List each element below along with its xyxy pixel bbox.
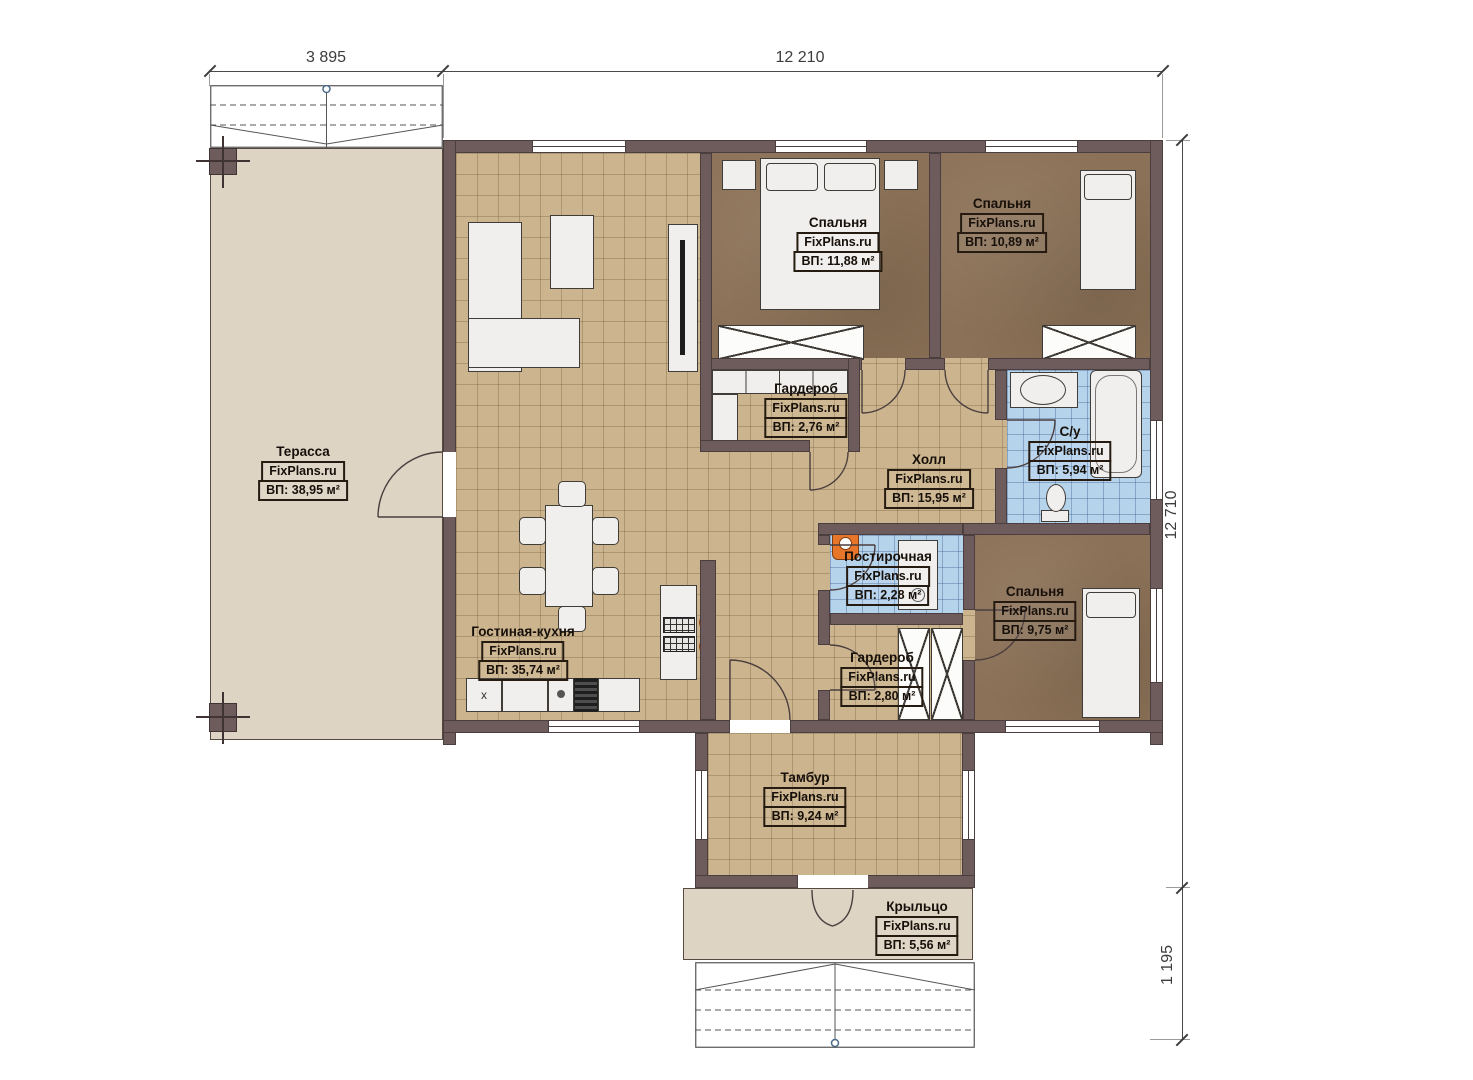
- extension-line: [443, 74, 444, 138]
- room-name: Гардероб: [774, 381, 838, 396]
- room-name: Холл: [912, 452, 946, 467]
- watermark: FixPlans.ru: [887, 469, 970, 490]
- room-area: ВП: 2,76 м²: [765, 417, 848, 438]
- room-area: ВП: 9,24 м²: [764, 806, 847, 827]
- room-name: Постирочная: [844, 549, 932, 564]
- dimension-right: 12 710: [1163, 475, 1181, 555]
- door-arc-vestibule: [730, 660, 790, 720]
- watermark: FixPlans.ru: [846, 566, 929, 587]
- room-name: Гардероб: [850, 650, 914, 665]
- room-label-vestibule: Тамбур FixPlans.ru ВП: 9,24 м²: [763, 770, 846, 827]
- room-area: ВП: 2,28 м²: [847, 585, 930, 606]
- dimension-top-left: 3 895: [286, 49, 366, 67]
- room-label-terrace: Терасса FixPlans.ru ВП: 38,95 м²: [258, 444, 348, 501]
- watermark: FixPlans.ru: [875, 916, 958, 937]
- room-area: ВП: 2,80 м²: [841, 686, 924, 707]
- dimension-line-top: [210, 71, 1163, 72]
- watermark: FixPlans.ru: [1028, 441, 1111, 462]
- door-arc-terrace: [378, 452, 443, 517]
- watermark: FixPlans.ru: [481, 641, 564, 662]
- room-label-living-kitchen: Гостиная-кухня FixPlans.ru ВП: 35,74 м²: [471, 624, 574, 681]
- room-area: ВП: 5,56 м²: [876, 935, 959, 956]
- room-area: ВП: 11,88 м²: [793, 251, 882, 272]
- room-area: ВП: 10,89 м²: [957, 232, 1047, 253]
- room-area: ВП: 15,95 м²: [884, 488, 974, 509]
- watermark: FixPlans.ru: [840, 667, 923, 688]
- room-label-bedroom-2: Спальня FixPlans.ru ВП: 10,89 м²: [957, 196, 1047, 253]
- room-label-bedroom-1: Спальня FixPlans.ru ВП: 11,88 м²: [793, 215, 882, 272]
- room-name: Тамбур: [781, 770, 830, 785]
- doors-layer: [0, 0, 1473, 1080]
- door-arc-bedroom-1: [862, 370, 905, 413]
- extension-line: [1166, 887, 1190, 888]
- room-name: Крыльцо: [886, 899, 947, 914]
- dimension-line-right: [1182, 140, 1183, 1040]
- room-label-porch: Крыльцо FixPlans.ru ВП: 5,56 м²: [875, 899, 958, 956]
- watermark: FixPlans.ru: [764, 398, 847, 419]
- watermark: FixPlans.ru: [763, 787, 846, 808]
- room-area: ВП: 38,95 м²: [258, 480, 348, 501]
- room-label-hall: Холл FixPlans.ru ВП: 15,95 м²: [884, 452, 974, 509]
- watermark: FixPlans.ru: [261, 461, 344, 482]
- watermark: FixPlans.ru: [796, 232, 879, 253]
- watermark: FixPlans.ru: [960, 213, 1043, 234]
- room-name: Спальня: [973, 196, 1031, 211]
- room-name: Спальня: [809, 215, 867, 230]
- room-label-laundry: Постирочная FixPlans.ru ВП: 2,28 м²: [844, 549, 932, 606]
- room-area: ВП: 5,94 м²: [1029, 460, 1112, 481]
- extension-line: [209, 74, 210, 86]
- watermark: FixPlans.ru: [993, 601, 1076, 622]
- room-name: С/у: [1059, 424, 1080, 439]
- room-label-bathroom: С/у FixPlans.ru ВП: 5,94 м²: [1028, 424, 1111, 481]
- room-name: Спальня: [1006, 584, 1064, 599]
- extension-line: [1162, 74, 1163, 138]
- room-area: ВП: 35,74 м²: [478, 660, 568, 681]
- door-arc-bedroom-2: [945, 370, 988, 413]
- room-label-bedroom-3: Спальня FixPlans.ru ВП: 9,75 м²: [993, 584, 1076, 641]
- entrance-door-swing: [812, 890, 853, 926]
- dimension-bottom-right: 1 195: [1159, 925, 1177, 1005]
- door-arc-wardrobe-1: [810, 452, 848, 490]
- dimension-top-right: 12 210: [745, 49, 855, 67]
- room-area: ВП: 9,75 м²: [994, 620, 1077, 641]
- room-name: Гостиная-кухня: [471, 624, 574, 639]
- floor-plan: 3 895 12 210 12 710 1 195: [0, 0, 1473, 1080]
- room-label-wardrobe-1: Гардероб FixPlans.ru ВП: 2,76 м²: [764, 381, 847, 438]
- room-name: Терасса: [276, 444, 330, 459]
- room-label-wardrobe-2: Гардероб FixPlans.ru ВП: 2,80 м²: [840, 650, 923, 707]
